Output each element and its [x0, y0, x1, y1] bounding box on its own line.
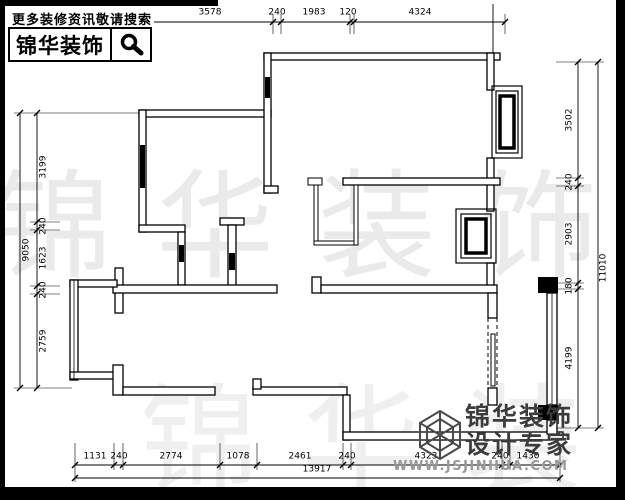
dim-label: 1078: [227, 453, 250, 462]
dim-label: 1983: [303, 9, 326, 18]
floorplan-page: 锦华装饰 锦华装饰: [0, 0, 625, 500]
dim-label: 1131: [84, 453, 107, 462]
hex-cube-icon: [417, 409, 463, 461]
dim-label: 240: [40, 217, 49, 234]
walls: [70, 53, 563, 440]
dim-total-label: 13917: [303, 466, 332, 475]
partition-walls: [308, 178, 358, 245]
search-icon: [112, 29, 150, 60]
dim-label: 120: [339, 9, 356, 18]
dim-label: 240: [338, 453, 355, 462]
dim-label: 1623: [40, 247, 49, 270]
dim-label: 240: [110, 453, 127, 462]
dim-label: 3578: [199, 9, 222, 18]
dim-total-label: 11010: [600, 254, 609, 283]
dim-label: 4324: [409, 9, 432, 18]
company-name: 锦华装饰: [465, 403, 573, 431]
company-website: WWW.JSJINHUA.COM: [393, 459, 568, 474]
dim-label: 4199: [566, 347, 575, 370]
dim-label: 3199: [40, 156, 49, 179]
dim-label: 240: [566, 173, 575, 190]
sliding-door: [488, 318, 497, 388]
company-subtitle: 设计专家: [465, 431, 573, 459]
dim-label: 2903: [566, 223, 575, 246]
dim-label: 180: [566, 277, 575, 294]
company-logo-block: 锦华装饰 设计专家 WWW.JSJINHUA.COM: [417, 407, 617, 482]
promo-tagline: 更多装修资讯敬请搜索: [10, 8, 154, 29]
brand-search-box: 锦华装饰: [8, 27, 152, 62]
frame-left: [0, 0, 5, 500]
bay-window-upper: [492, 86, 522, 158]
brand-name: 锦华装饰: [10, 29, 112, 60]
frame-right: [616, 0, 625, 500]
frame-top-left: [0, 0, 218, 6]
dim-total-label: 9050: [23, 239, 32, 262]
dim-label: 240: [268, 9, 285, 18]
bay-window-middle: [456, 209, 496, 263]
window-bars: [140, 77, 270, 270]
frame-bottom: [0, 487, 625, 500]
dim-label: 240: [40, 281, 49, 298]
dim-label: 2461: [289, 453, 312, 462]
dim-label: 2759: [40, 330, 49, 353]
dim-label: 3502: [566, 109, 575, 132]
dim-label: 2774: [160, 453, 183, 462]
